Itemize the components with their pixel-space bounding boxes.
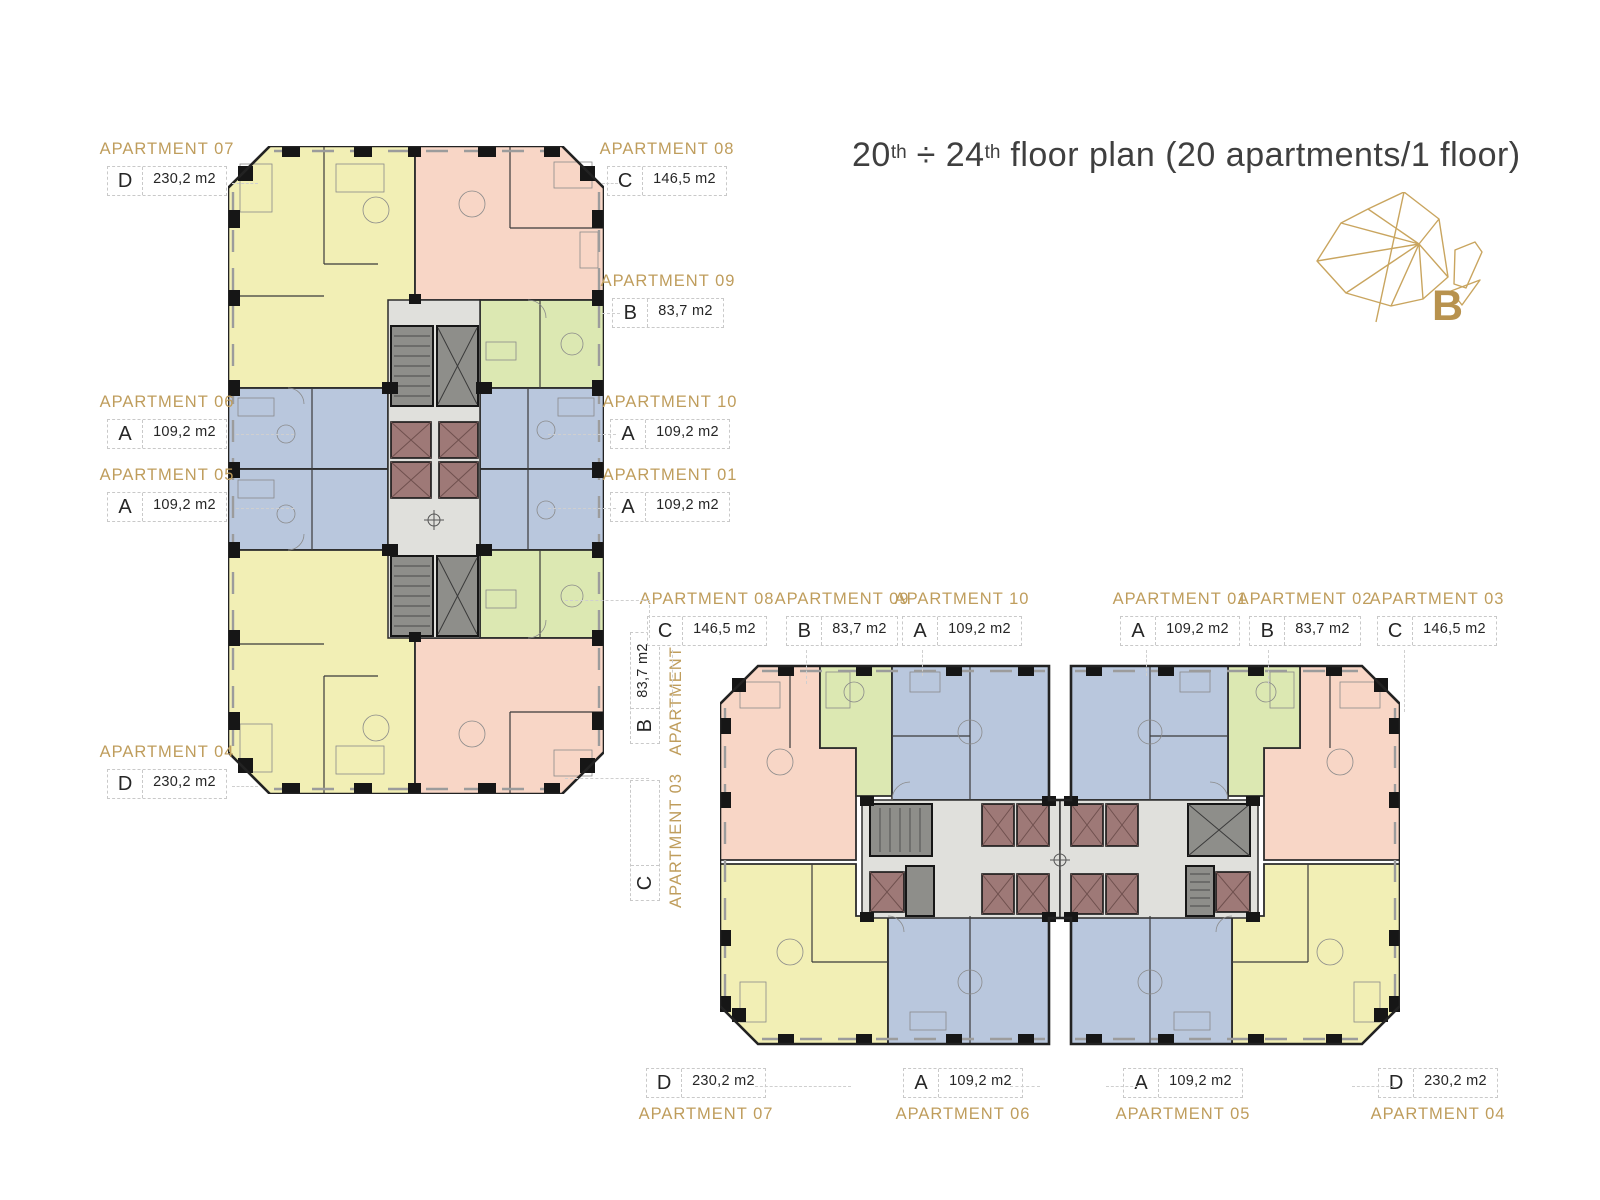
apartment-05-label-left: APARTMENT 05 A109,2 m2 [97,466,237,522]
apartment-02-label-right: APARTMENT 02 B83,7 m2 [1235,590,1375,646]
left-tower-plan [228,146,604,794]
leader-line [236,434,294,435]
leader-line [548,434,616,435]
right-tower-plan [720,652,1400,1052]
leader-line [1146,650,1147,676]
leader-line [565,600,649,601]
leader-line [922,650,923,676]
apartment-10-label-left: APARTMENT 10 A109,2 m2 [600,393,740,449]
logo-letter-b: B [1432,282,1463,331]
apt-zone-05 [228,469,388,550]
leader-line [602,183,618,184]
apartment-04-label-left: APARTMENT 04 D230,2 m2 [97,743,237,799]
leader-line [1404,650,1405,712]
apartment-08-label-right: APARTMENT 08 C146,5 m2 [637,590,777,646]
leader-line [1106,1086,1138,1087]
apartment-01-label-right: APARTMENT 01 A109,2 m2 [1110,590,1250,646]
apartment-03-label-right: APARTMENT 03 C146,5 m2 [1367,590,1507,646]
leader-line [232,786,258,787]
leader-line [1010,1086,1040,1087]
floor-plan-page: 20th ÷ 24th floor plan (20 apartments/1 … [0,0,1600,1200]
leader-line [236,508,294,509]
leader-line [232,183,258,184]
page-title: 20th ÷ 24th floor plan (20 apartments/1 … [852,136,1521,175]
apartment-09-label-left: APARTMENT 09 B83,7 m2 [598,272,738,328]
apt-zone-01 [480,469,604,550]
apartment-09-label-right: APARTMENT 09 B83,7 m2 [772,590,912,646]
leader-line [565,778,649,779]
apartment-01-label-left: APARTMENT 01 A109,2 m2 [600,466,740,522]
apt-zone-r05 [1071,916,1232,1044]
apartment-07-label-left: APARTMENT 07 D230,2 m2 [97,140,237,196]
leader-line [649,600,650,638]
leader-line [548,508,616,509]
apartment-06-label-right: A109,2 m2 APARTMENT 06 [893,1068,1033,1124]
apartment-04-label-right: D230,2 m2 APARTMENT 04 [1368,1068,1508,1124]
apt-zone-06 [228,388,388,469]
apartment-type: D [108,167,143,195]
apartment-05-label-right: A109,2 m2 APARTMENT 05 [1113,1068,1253,1124]
apt-zone-09 [480,300,604,388]
apartment-10-label-right: APARTMENT 10 A109,2 m2 [892,590,1032,646]
leader-line [806,650,807,684]
apt-zone-02 [480,550,604,638]
leader-line [672,650,673,712]
apartment-type-box: D230,2 m2 [107,166,227,196]
leader-line [1268,650,1269,684]
leader-line [755,1086,851,1087]
apartment-07-label-right: D230,2 m2 APARTMENT 07 [636,1068,776,1124]
apartment-06-label-left: APARTMENT 06 A109,2 m2 [97,393,237,449]
apt-zone-04 [228,550,415,794]
leader-line [602,313,620,314]
apt-zone-r06 [888,916,1049,1044]
apartment-name: APARTMENT 07 [100,140,235,159]
logo-wireframe [1305,192,1495,337]
leader-line [1352,1086,1394,1087]
apartment-08-label-left: APARTMENT 08 C146,5 m2 [597,140,737,196]
apartment-03-label-left: C APARTMENT 03 [630,773,686,908]
apartment-area: 230,2 m2 [143,167,226,195]
apt-zone-10 [480,388,604,469]
